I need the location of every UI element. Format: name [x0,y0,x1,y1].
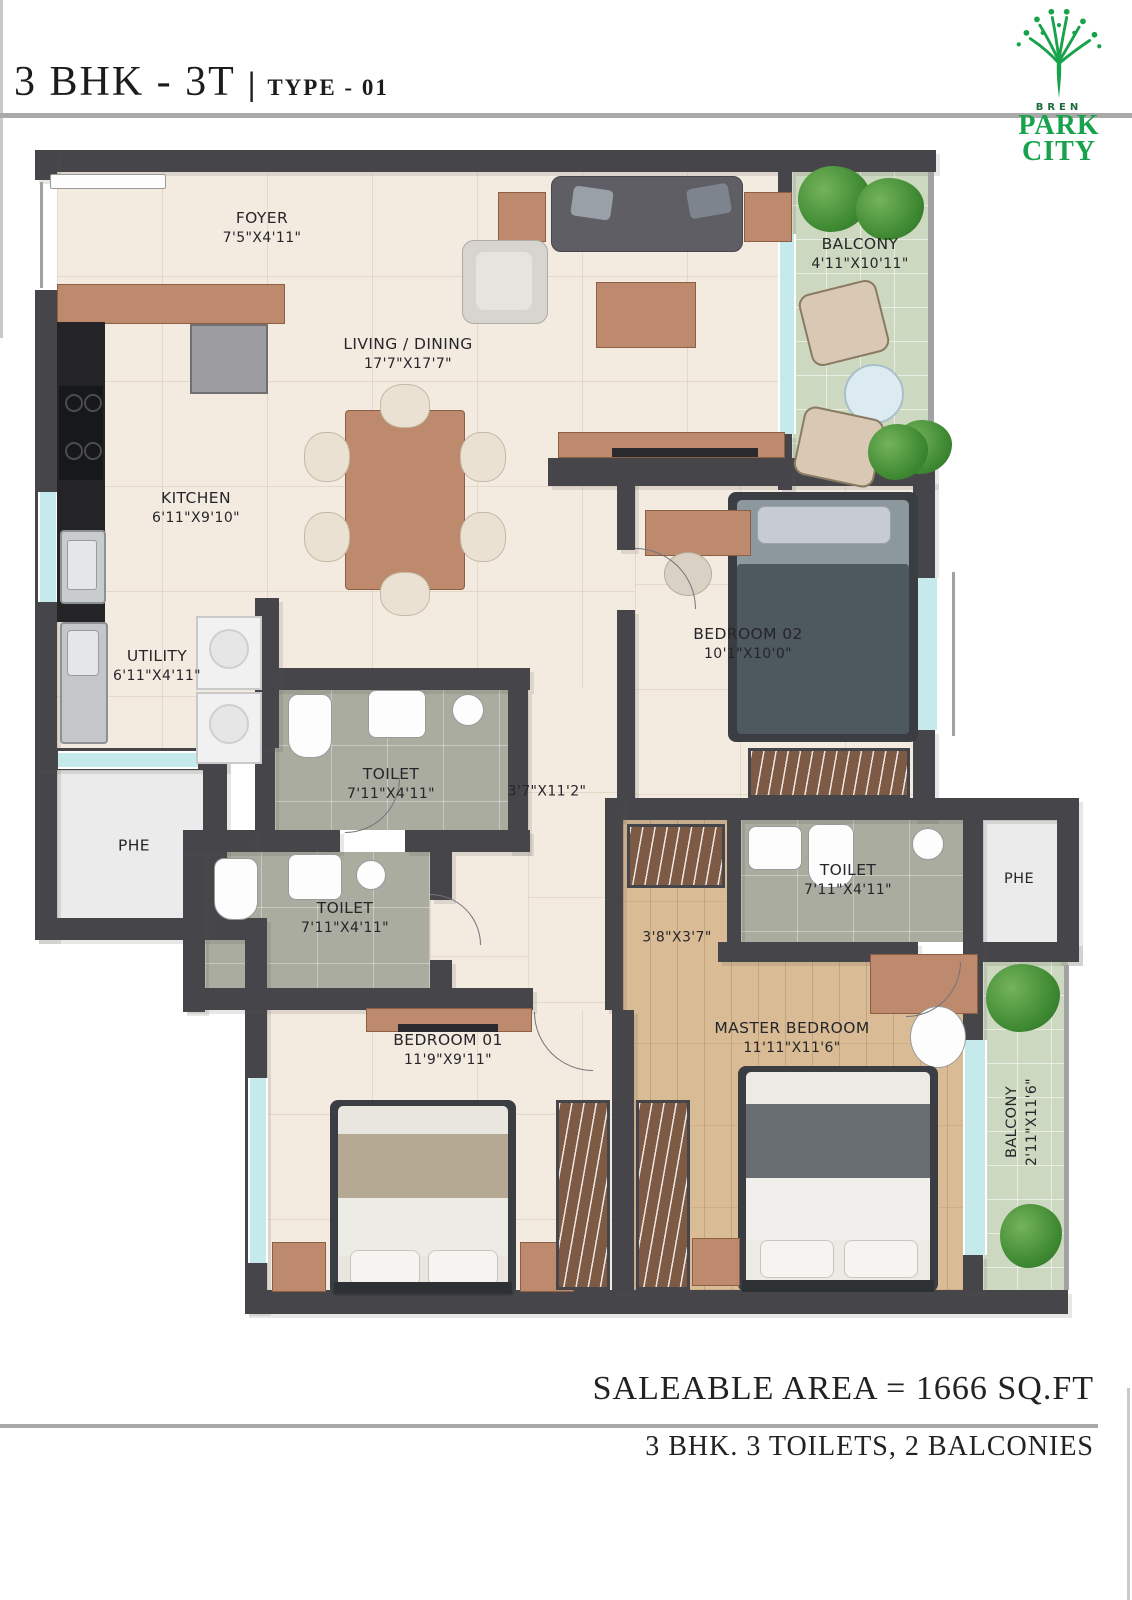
wall-toiletB-outer-left [183,830,205,1012]
bedroom1-window [248,1078,268,1263]
wall-toiletB-right-a [430,852,452,900]
label-balcony-right: BALCONY2'11"X11'6" [1003,1078,1041,1166]
footer-divider [0,1424,1098,1428]
label-utility: UTILITY6'11"X4'11" [113,646,201,686]
wall-master-balcony-bottom [963,1255,983,1292]
label-bedroom2: BEDROOM 0210'1"X10'0" [693,624,803,664]
phe-window [58,751,198,769]
label-kitchen: KITCHEN6'11"X9'10" [152,488,240,528]
wall-toiletA-right [508,690,528,852]
wall-bedroom1-top [183,988,533,1010]
bedroom1-duvet [338,1134,508,1198]
kitchen-window [38,492,58,602]
coffee-table [596,282,696,348]
toilet-bed1-shower [356,860,386,890]
wall-walkin-left [605,798,623,1010]
hob-burner [84,442,102,460]
walkin-wardrobe [627,824,725,888]
toilet-common-sink [368,690,426,738]
wall-toiletA-top [255,668,530,690]
label-toilet-common: TOILET7'11"X4'11" [347,764,435,804]
bedroom1-pillow [428,1250,498,1286]
label-bedroom1: BEDROOM 0111'9"X9'11" [393,1030,503,1070]
wall-phe-right-bottom [983,942,1079,962]
side-table-right [744,192,792,242]
label-living: LIVING / DINING17'7"X17'7" [343,334,472,374]
title-main: 3 BHK - 3T [14,58,236,106]
label-toilet-bed1: TOILET7'11"X4'11" [301,898,389,938]
master-nightstand [692,1238,740,1286]
toilet-common-wc [288,694,332,758]
balcony2-railing [1064,965,1069,1290]
logo-line1: PARK [1000,113,1118,139]
master-balcony-window [963,1040,987,1255]
label-master: MASTER BEDROOM11'11"X11'6" [714,1018,869,1058]
saleable-area-text: SALEABLE AREA = 1666 SQ.FT [593,1370,1094,1408]
bedroom1-sheet [338,1198,508,1256]
dining-chair [304,512,350,562]
label-toilet-master: TOILET7'11"X4'11" [804,860,892,900]
wall-bedroom2-left-b [617,610,635,798]
title-separator: | [248,66,256,104]
master-wardrobe [636,1100,690,1290]
sofa-pillow-left [570,185,614,220]
wall-toiletB-top [183,830,255,852]
tree-icon [1011,6,1107,98]
wall-toiletM-phe [963,820,983,942]
dining-chair [380,572,430,616]
dining-chair [380,384,430,428]
label-phe-right: PHE [1004,870,1034,890]
utility-sink-basin [67,630,99,676]
master-pillow [760,1240,834,1278]
page-title: 3 BHK - 3T | TYPE - 01 [14,58,389,106]
washer-drum [209,629,249,669]
bedroom1-headboard [334,1282,512,1294]
bedroom1-wardrobe [556,1100,610,1290]
bedroom2-pillow [757,506,891,544]
bedroom1-pillow [350,1250,420,1286]
entry-sliding-door [50,174,166,189]
dining-chair [460,512,506,562]
bedroom2-desk [645,510,751,556]
wall-toiletB-right-b [430,960,452,990]
dining-table [345,410,465,590]
label-corridor: 3'7"X11'2" [508,783,587,802]
kitchen-appliance [190,324,268,394]
wall-toiletA-bottom-b [405,830,530,852]
wall-top [35,150,936,172]
label-walkin: 3'8"X3'7" [642,929,711,948]
dining-chair [304,432,350,482]
label-balcony-top: BALCONY4'11"X10'11" [811,234,908,274]
armchair-cushion [476,252,532,310]
hob-burner [84,394,102,412]
label-foyer: FOYER7'5"X4'11" [223,208,302,248]
wall-left-main [35,290,57,940]
header-divider [0,113,1132,118]
summary-text: 3 BHK. 3 TOILETS, 2 BALCONIES [645,1431,1094,1463]
label-phe-left: PHE [118,836,150,857]
kitchen-counter-top [57,284,285,324]
wall-walkin-toiletM [727,820,741,942]
toilet-master-sink [748,826,802,870]
page-border-right [1127,1388,1130,1600]
wall-bedroom1-master [612,1010,634,1292]
toilet-bed1-wc [214,858,258,920]
brochure-page: 3 BHK - 3T | TYPE - 01 BREN PARK CITY [0,0,1132,1600]
master-pillow [844,1240,918,1278]
hob-burner [65,442,83,460]
wall-master-top [605,798,1057,820]
master-headboard [742,1280,934,1292]
kitchen-sink-basin [67,540,97,590]
entry-opening-line [40,182,43,288]
balcony1-slider-window [778,234,796,434]
toilet-master-shower [912,828,944,860]
side-table-left [498,192,546,242]
dryer-drum [209,704,249,744]
dining-chair [460,432,506,482]
wall-phe-right-outer [1057,798,1079,962]
toilet-common-shower [452,694,484,726]
brand-logo: BREN PARK CITY [1000,6,1118,165]
wall-phe-bottom [35,918,247,940]
page-border-left [0,0,3,338]
logo-line2: CITY [1000,139,1118,165]
master-blanket [746,1104,930,1178]
title-subtitle: TYPE - 01 [267,75,389,101]
hob-burner [65,394,83,412]
wall-toiletA-bottom-a [255,830,340,852]
corridor-floor [528,688,617,1012]
master-sheet [746,1178,930,1240]
bedroom2-wardrobe [748,748,910,798]
wall-bedroom2-left-a [617,480,635,550]
toilet-bed1-sink [288,854,342,900]
tv-living [612,448,758,457]
bedroom2-bay-line [952,572,955,736]
bedroom1-nightstand-left [272,1242,326,1292]
